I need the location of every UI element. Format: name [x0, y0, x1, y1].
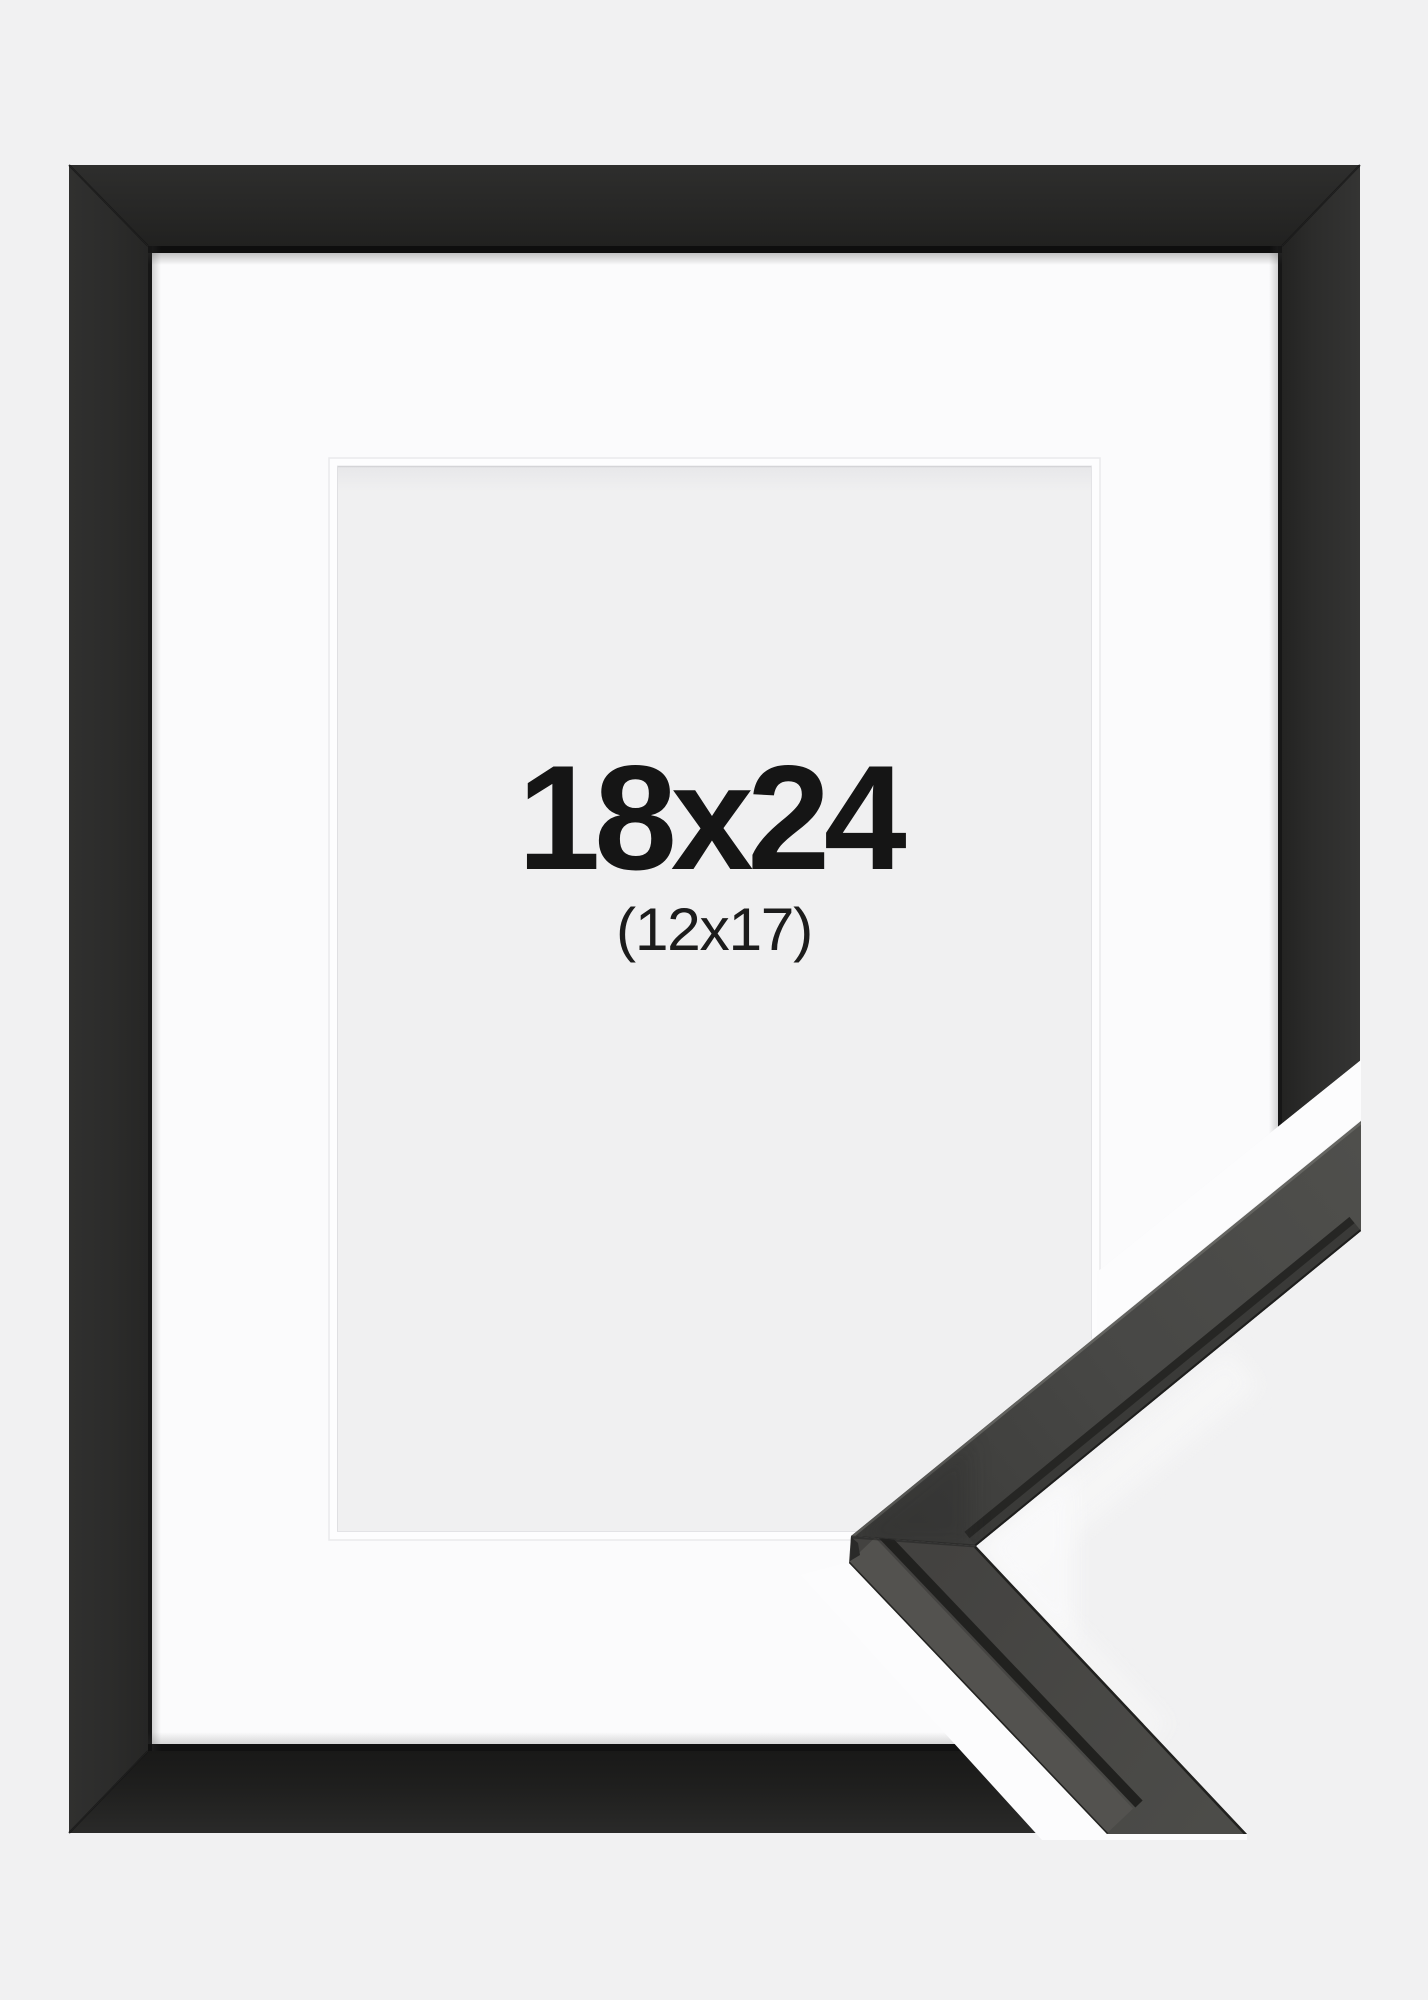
- svg-text:18x24: 18x24: [518, 734, 907, 901]
- svg-text:(12x17): (12x17): [616, 895, 812, 963]
